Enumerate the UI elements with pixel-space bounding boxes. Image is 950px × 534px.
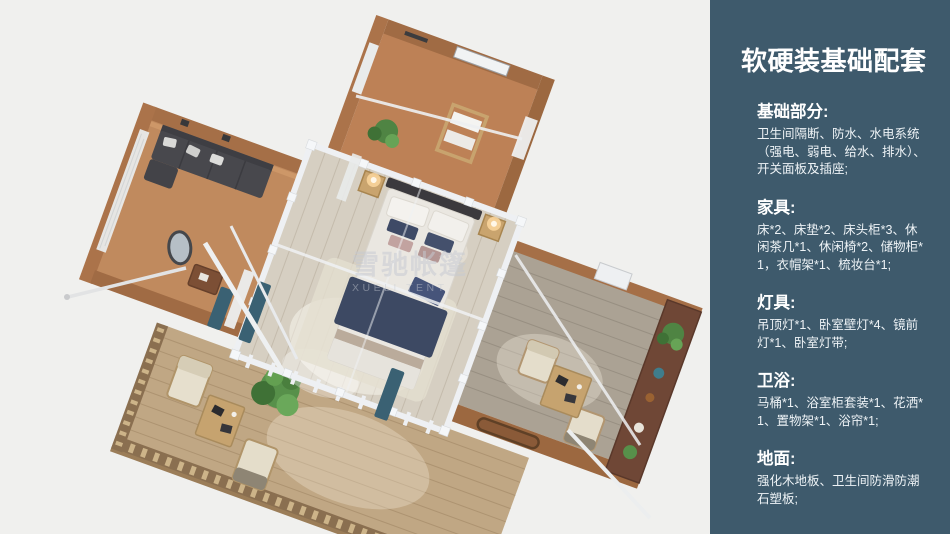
section-heading: 灯具:	[757, 293, 928, 313]
spec-section-bathroom: 卫浴: 马桶*1、浴室柜套装*1、花洒*1、置物架*1、浴帘*1;	[757, 371, 928, 430]
section-body: 吊顶灯*1、卧室壁灯*4、镜前灯*1、卧室灯带;	[757, 317, 928, 352]
spec-sections: 基础部分: 卫生间隔断、防水、水电系统（强电、弱电、给水、排水）、开关面板及插座…	[710, 76, 950, 508]
section-body: 卫生间隔断、防水、水电系统（强电、弱电、给水、排水）、开关面板及插座;	[757, 126, 928, 179]
section-body: 强化木地板、卫生间防滑防潮石塑板;	[757, 473, 928, 508]
section-body: 马桶*1、浴室柜套装*1、花洒*1、置物架*1、浴帘*1;	[757, 395, 928, 430]
section-heading: 家具:	[757, 198, 928, 218]
spec-section-lighting: 灯具: 吊顶灯*1、卧室壁灯*4、镜前灯*1、卧室灯带;	[757, 293, 928, 352]
spec-panel: 软硬装基础配套 基础部分: 卫生间隔断、防水、水电系统（强电、弱电、给水、排水）…	[710, 0, 950, 534]
section-heading: 基础部分:	[757, 102, 928, 122]
floorplan-svg	[0, 0, 710, 534]
section-heading: 卫浴:	[757, 371, 928, 391]
panel-title: 软硬装基础配套	[710, 0, 950, 76]
section-body: 床*2、床垫*2、床头柜*3、休闲茶几*1、休闲椅*2、储物柜*1，衣帽架*1、…	[757, 222, 928, 275]
spec-section-basics: 基础部分: 卫生间隔断、防水、水电系统（强电、弱电、给水、排水）、开关面板及插座…	[757, 102, 928, 179]
floorplan-render: 雪驰帐篷 XUELI TENT	[0, 0, 710, 534]
mirror	[168, 231, 192, 264]
section-heading: 地面:	[757, 449, 928, 469]
spec-section-furniture: 家具: 床*2、床垫*2、床头柜*3、休闲茶几*1、休闲椅*2、储物柜*1，衣帽…	[757, 198, 928, 275]
slide: 雪驰帐篷 XUELI TENT 软硬装基础配套 基础部分: 卫生间隔断、防水、水…	[0, 0, 950, 534]
spec-section-flooring: 地面: 强化木地板、卫生间防滑防潮石塑板;	[757, 449, 928, 508]
